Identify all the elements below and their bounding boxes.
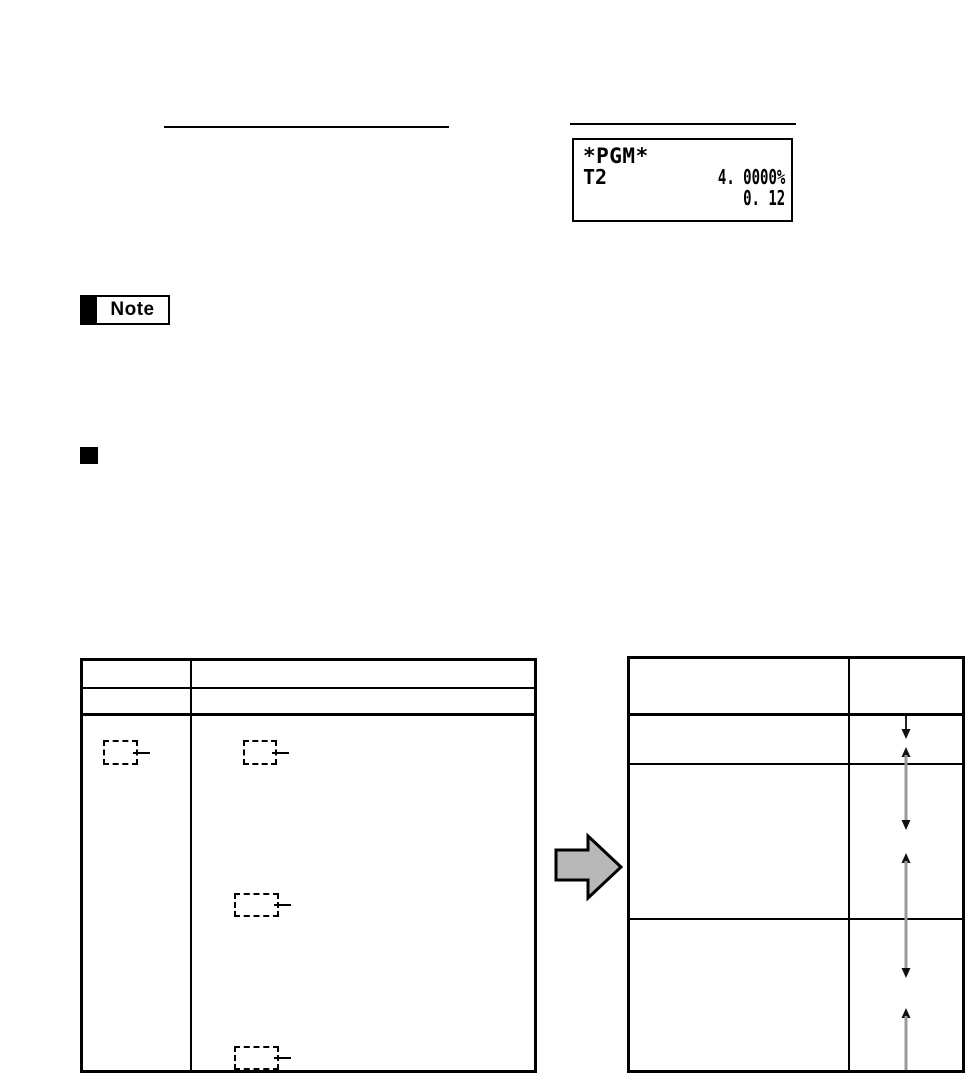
blank-key-icon xyxy=(103,740,138,765)
note-label: Note xyxy=(110,299,154,321)
result-table xyxy=(627,656,965,1073)
row-connector-arrows xyxy=(848,659,962,1070)
receipt-display-sample: *PGM* T2 4. 0000% 0. 12 xyxy=(572,138,793,222)
procedure-table xyxy=(80,658,537,1073)
down-arrow-icon xyxy=(902,716,911,739)
receipt-mode-text: *PGM* xyxy=(583,146,785,167)
up-down-arrow-icon xyxy=(902,853,911,978)
blank-key-icon xyxy=(243,740,277,765)
receipt-tax-label: T2 xyxy=(583,167,607,188)
top-left-rule xyxy=(164,126,449,128)
up-down-arrow-icon xyxy=(902,747,911,830)
note-callout: Note xyxy=(95,295,170,325)
blank-key-icon xyxy=(234,1046,279,1070)
blank-key-icon xyxy=(234,893,279,917)
receipt-tax-amount: 0. 12 xyxy=(743,188,785,209)
top-right-rule xyxy=(570,123,796,125)
right-block-arrow-icon xyxy=(550,832,628,904)
procedure-table-column-divider xyxy=(190,661,192,1070)
procedure-table-header-bottom-border xyxy=(83,713,534,716)
manual-page: { "colors": { "ink": "#000000", "transfo… xyxy=(0,0,975,1080)
note-bar xyxy=(80,295,95,325)
procedure-table-header-divider xyxy=(83,687,534,689)
up-arrow-icon xyxy=(902,1008,911,1070)
section-bullet-icon xyxy=(80,447,98,464)
receipt-tax-rate: 4. 0000% xyxy=(718,167,785,188)
